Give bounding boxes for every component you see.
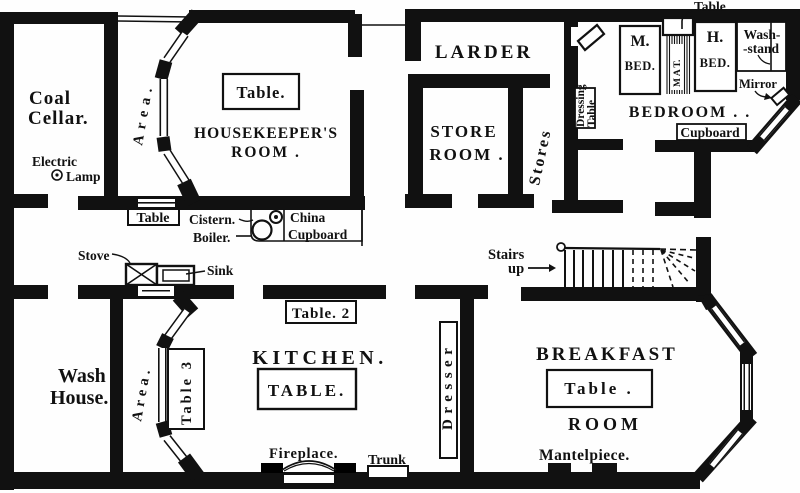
svg-text:KITCHEN.: KITCHEN.: [252, 347, 387, 369]
svg-text:BEDROOM . .: BEDROOM . .: [629, 104, 751, 121]
svg-text:BED.: BED.: [700, 56, 731, 70]
svg-text:Mantelpiece.: Mantelpiece.: [539, 447, 630, 464]
svg-text:Cupboard: Cupboard: [288, 227, 348, 242]
svg-text:Table .: Table .: [564, 379, 634, 398]
svg-text:China: China: [290, 210, 326, 225]
svg-text:ROOM .: ROOM .: [429, 145, 504, 164]
svg-text:Coal: Coal: [29, 88, 71, 109]
svg-text:up: up: [508, 261, 524, 277]
svg-text:Table.: Table.: [237, 83, 286, 102]
svg-text:Table: Table: [694, 0, 726, 14]
svg-text:Fireplace.: Fireplace.: [269, 446, 338, 462]
svg-text:H.: H.: [707, 29, 723, 46]
svg-text:Cellar.: Cellar.: [28, 108, 89, 129]
svg-text:Wash-: Wash-: [744, 27, 781, 42]
svg-text:Boiler.: Boiler.: [193, 230, 230, 245]
svg-text:Mirror: Mirror: [739, 77, 777, 91]
svg-text:M A T.: M A T.: [673, 60, 683, 87]
svg-text:TABLE.: TABLE.: [268, 381, 347, 400]
svg-text:STORE: STORE: [430, 122, 497, 141]
svg-text:BED.: BED.: [625, 59, 656, 73]
svg-text:Dresser: Dresser: [440, 343, 456, 430]
svg-text:M.: M.: [630, 33, 649, 50]
svg-text:Lamp: Lamp: [66, 169, 101, 184]
svg-text:ROOM: ROOM: [568, 414, 642, 434]
svg-text:Cupboard: Cupboard: [680, 125, 740, 140]
svg-text:Cistern.: Cistern.: [189, 212, 235, 227]
svg-text:BREAKFAST: BREAKFAST: [536, 344, 678, 365]
svg-text:LARDER: LARDER: [435, 42, 533, 63]
svg-text:Stove: Stove: [78, 248, 110, 263]
svg-text:Table 3: Table 3: [179, 359, 195, 425]
svg-text:-stand: -stand: [743, 41, 780, 56]
svg-text:ROOM .: ROOM .: [231, 144, 301, 161]
svg-text:HOUSEKEEPER'S: HOUSEKEEPER'S: [194, 125, 338, 142]
svg-text:Table: Table: [137, 211, 170, 226]
svg-text:Sink: Sink: [207, 263, 234, 278]
svg-text:Table. 2: Table. 2: [292, 306, 350, 322]
svg-text:Electric: Electric: [32, 154, 77, 169]
svg-text:House.: House.: [50, 387, 108, 409]
svg-text:Wash: Wash: [58, 365, 106, 387]
svg-text:Table: Table: [586, 100, 598, 127]
